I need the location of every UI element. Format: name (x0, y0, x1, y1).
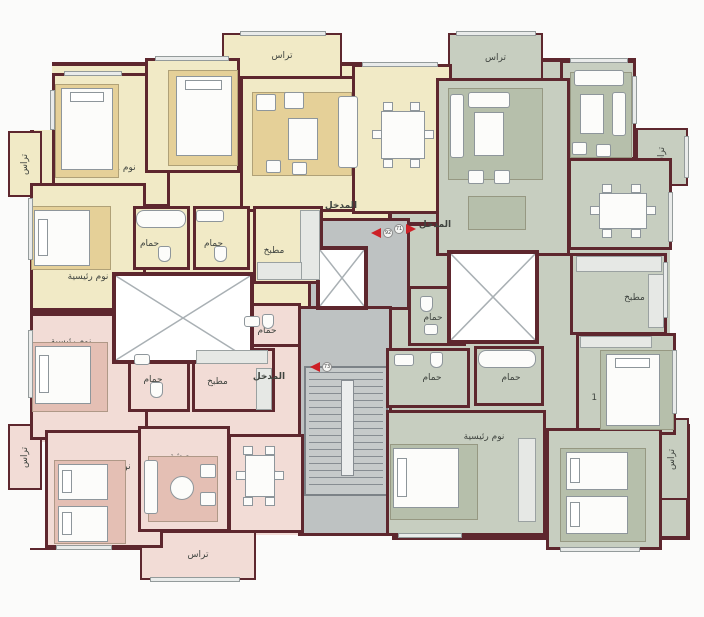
bed-icon (34, 210, 90, 266)
sofa-icon (144, 460, 158, 514)
entrance-arrow (406, 224, 416, 234)
room-label: حمام (501, 374, 520, 383)
armchair-icon (572, 142, 587, 155)
chair-icon (265, 497, 275, 506)
kitchen-counter (580, 336, 652, 348)
chair-icon (646, 206, 656, 215)
kitchen-counter (196, 350, 268, 364)
window-mark (663, 262, 668, 318)
armchair-icon (266, 160, 281, 173)
kitchen-counter (648, 274, 664, 328)
armchair-icon (200, 492, 216, 506)
room-terrace-top-green: تراس (448, 33, 543, 83)
elevator-left (316, 246, 368, 310)
entrance-arrow-number: 73 (322, 362, 332, 372)
toilet-icon (158, 246, 171, 262)
window-mark (240, 31, 326, 36)
sofa-icon (338, 96, 358, 168)
kitchen-counter (576, 256, 662, 272)
toilet-icon (150, 382, 163, 398)
table-icon (288, 118, 318, 160)
chair-icon (631, 184, 641, 193)
window-mark (684, 136, 689, 178)
room-label: مطبخ (207, 378, 228, 387)
chair-icon (243, 446, 253, 455)
window-mark (672, 350, 677, 414)
armchair-icon (200, 464, 216, 478)
window-mark (28, 198, 33, 260)
armchair-icon (494, 170, 510, 184)
chair-icon (590, 206, 600, 215)
room-label: حمام (140, 240, 159, 249)
sink-icon (244, 316, 260, 327)
sink-icon (196, 210, 224, 222)
bed-icon (176, 76, 232, 156)
armchair-icon (284, 92, 304, 109)
building-gap (636, 58, 672, 128)
staircase (304, 366, 388, 496)
chair-icon (602, 229, 612, 238)
stair-rail (341, 380, 354, 476)
window-mark (632, 76, 637, 124)
kitchen-counter (518, 438, 536, 522)
window-mark (50, 90, 55, 130)
bed-icon (566, 452, 628, 490)
window-mark (64, 71, 122, 76)
room-label: تراس (485, 54, 506, 63)
bathtub-icon (478, 350, 536, 368)
chair-icon (410, 102, 420, 111)
room-label: مطبخ (264, 247, 285, 256)
entrance-label: المدخل (412, 221, 458, 230)
dining-table-set (590, 184, 656, 238)
window-mark (28, 330, 33, 398)
entrance-label: المدخل (318, 202, 364, 211)
kitchen-counter (300, 210, 320, 280)
room-label: نوم رئيسية (68, 273, 109, 282)
bed-icon (58, 506, 108, 542)
bed-icon (393, 448, 459, 508)
round-table-icon (170, 476, 194, 500)
dining-table-set (236, 446, 284, 506)
room-label: حمام (423, 314, 442, 323)
chair-icon (383, 159, 393, 168)
building-gap (304, 536, 392, 582)
room-label: مطبخ (624, 294, 645, 303)
sofa-icon (468, 92, 510, 108)
armchair-icon (292, 162, 307, 175)
armchair-icon (468, 170, 484, 184)
window-mark (456, 31, 536, 36)
toilet-icon (262, 314, 274, 329)
window-mark (668, 192, 673, 242)
entrance-arrow-number: 92 (383, 228, 393, 238)
room-terrace-top-yellow: تراس (222, 33, 342, 80)
kitchen-counter (257, 262, 302, 280)
entrance-arrow (310, 362, 320, 372)
chair-icon (372, 130, 382, 139)
armchair-icon (256, 94, 276, 111)
chair-icon (274, 471, 284, 480)
furniture-rug (468, 196, 526, 230)
window-mark (570, 58, 628, 63)
sink-icon (424, 324, 438, 335)
table-icon (474, 112, 504, 156)
chair-icon (243, 497, 253, 506)
room-label: تراس (188, 551, 209, 560)
bed-icon (58, 464, 108, 500)
window-mark (560, 547, 640, 552)
chair-icon (265, 446, 275, 455)
armchair-icon (596, 144, 611, 157)
room-label: تراس (272, 52, 293, 61)
chair-icon (424, 130, 434, 139)
sofa-icon (612, 92, 626, 136)
entrance-label: المدخل (246, 373, 292, 382)
window-mark (56, 545, 112, 550)
chair-icon (631, 229, 641, 238)
room-label: تراس (668, 449, 677, 470)
bed-icon (566, 496, 628, 534)
floor-plan: تراستراستراستراستراستراستراسنوم 1نوم 2مع… (0, 0, 704, 617)
bed-icon (61, 88, 113, 170)
room-label: تراس (21, 154, 30, 175)
toilet-icon (430, 352, 443, 368)
toilet-icon (420, 296, 433, 312)
window-mark (398, 533, 462, 538)
window-mark (155, 56, 229, 61)
sofa-icon (574, 70, 624, 86)
entrance-arrow-number: 71 (394, 224, 404, 234)
elevator-right (447, 250, 539, 344)
sink-icon (134, 354, 150, 365)
chair-icon (236, 471, 246, 480)
building-gap (30, 62, 52, 130)
sink-icon (394, 354, 414, 366)
window-mark (362, 62, 438, 67)
room-label: تراس (21, 447, 30, 468)
entrance-arrow (371, 228, 381, 238)
toilet-icon (214, 246, 227, 262)
chair-icon (383, 102, 393, 111)
table-icon (580, 94, 604, 134)
chair-icon (410, 159, 420, 168)
room-label: نوم رئيسية (464, 433, 505, 442)
bed-icon (606, 354, 660, 426)
bathtub-icon (136, 210, 186, 228)
chair-icon (602, 184, 612, 193)
window-mark (150, 577, 240, 582)
sofa-icon (450, 94, 464, 158)
bed-icon (35, 346, 91, 404)
dining-table-set (372, 102, 434, 168)
room-label: حمام (422, 374, 441, 383)
